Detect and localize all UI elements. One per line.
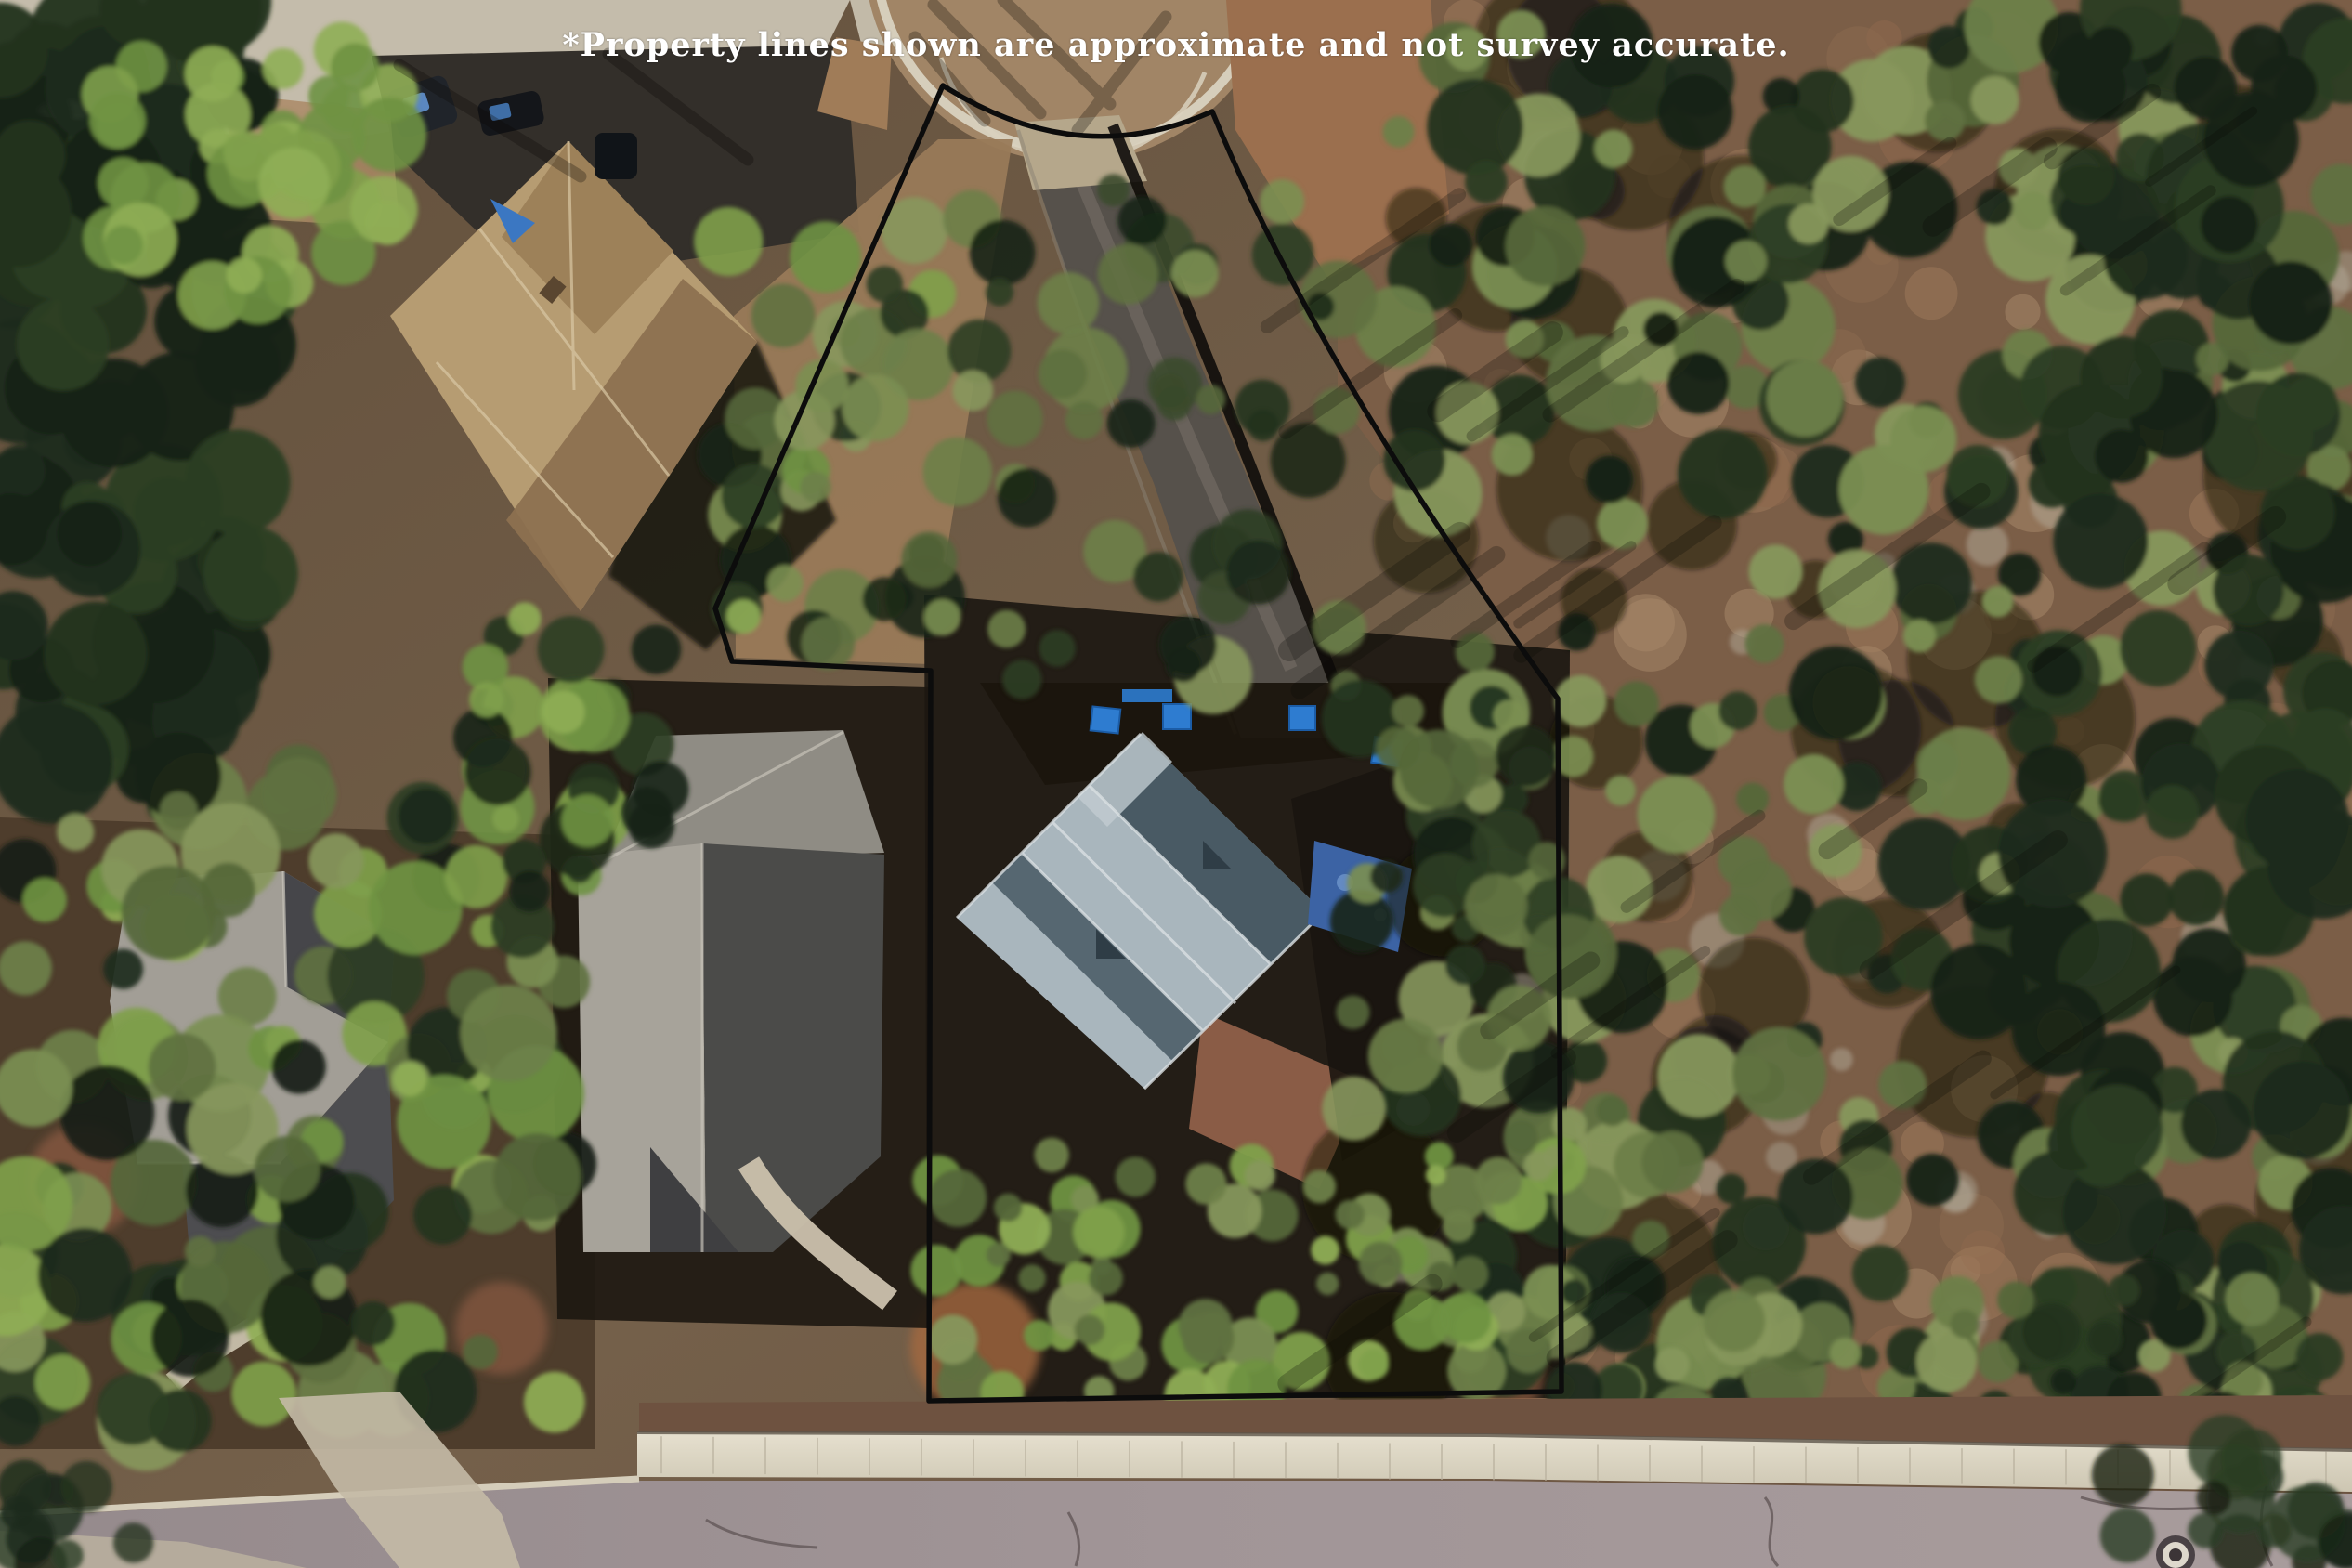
aerial-scene [0,0,2352,1568]
car [595,133,637,179]
disclaimer-text: *Property lines shown are approximate an… [0,26,2352,64]
aerial-photo: *Property lines shown are approximate an… [0,0,2352,1568]
